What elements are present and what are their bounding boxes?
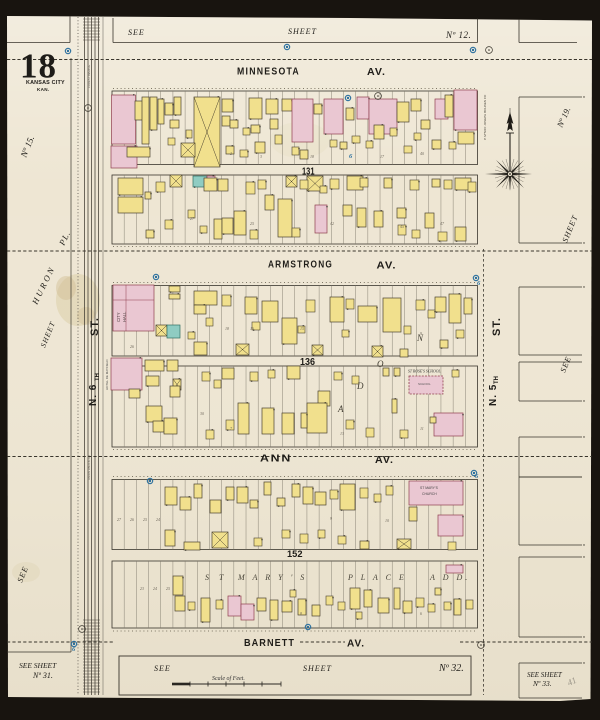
svg-text:SCHOOL: SCHOOL (418, 382, 431, 386)
svg-text:N. 6: N. 6 (88, 384, 99, 406)
svg-text:CITY: CITY (116, 312, 121, 322)
svg-text:SHEET: SHEET (303, 664, 332, 673)
svg-text:136: 136 (300, 356, 315, 368)
svg-text:16: 16 (250, 326, 254, 331)
svg-text:8: 8 (300, 611, 302, 616)
svg-text:S T: S T (205, 573, 227, 582)
svg-text:24: 24 (156, 517, 160, 522)
svg-text:Nº 12.: Nº 12. (445, 30, 471, 40)
svg-text:HOTEL DE MAYFIELD: HOTEL DE MAYFIELD (105, 359, 109, 390)
svg-text:Nº 32.: Nº 32. (438, 663, 464, 674)
svg-text:152: 152 (287, 549, 303, 560)
svg-text:UNION PACIFIC RY: UNION PACIFIC RY (87, 455, 91, 480)
svg-text:13: 13 (340, 431, 344, 436)
svg-text:18: 18 (225, 326, 229, 331)
svg-text:24: 24 (153, 586, 157, 591)
svg-text:M A R Y ' S: M A R Y ' S (237, 573, 307, 582)
svg-text:30: 30 (200, 411, 204, 416)
svg-text:25: 25 (166, 586, 170, 591)
svg-text:SHEET: SHEET (288, 27, 317, 36)
svg-text:AV.: AV. (377, 260, 397, 272)
svg-text:SEE SHEET: SEE SHEET (19, 661, 57, 670)
svg-text:KAN.: KAN. (37, 87, 49, 92)
svg-text:AV.: AV. (375, 454, 394, 466)
svg-text:O: O (377, 359, 384, 369)
svg-text:18: 18 (310, 154, 314, 159)
svg-text:P. MᶜNIFF JOSEPH BOHNEN CO: P. MᶜNIFF JOSEPH BOHNEN CO (483, 94, 487, 140)
svg-text:P L A C E: P L A C E (347, 573, 407, 582)
svg-text:ST ROSE'S SCHOOL: ST ROSE'S SCHOOL (408, 370, 441, 374)
svg-text:SEE: SEE (154, 664, 171, 673)
svg-text:25: 25 (250, 221, 254, 226)
svg-text:23: 23 (140, 586, 144, 591)
svg-text:FOREST AVENUE: FOREST AVENUE (87, 65, 91, 88)
svg-text:CHURCH: CHURCH (422, 492, 437, 496)
svg-text:KANSAS CITY: KANSAS CITY (26, 80, 65, 86)
svg-text:ARMSTRONG: ARMSTRONG (268, 259, 333, 271)
svg-text:Scale of Feet.: Scale of Feet. (212, 675, 245, 682)
svg-text:Nº 33.: Nº 33. (532, 679, 552, 688)
svg-text:SEE: SEE (128, 28, 145, 37)
svg-text:HALL: HALL (122, 311, 127, 322)
svg-text:ST.: ST. (491, 317, 503, 336)
svg-text:N. 5: N. 5 (488, 384, 499, 406)
svg-text:9: 9 (420, 331, 422, 336)
svg-text:SEE SHEET: SEE SHEET (527, 671, 563, 679)
svg-text:D: D (356, 381, 364, 391)
svg-text:42: 42 (330, 221, 334, 226)
svg-text:26: 26 (130, 517, 134, 522)
svg-text:2: 2 (230, 151, 232, 156)
svg-text:TH: TH (494, 376, 500, 384)
svg-text:25: 25 (143, 517, 147, 522)
svg-text:ST.: ST. (89, 317, 101, 336)
svg-text:9: 9 (330, 516, 332, 521)
svg-text:10: 10 (385, 518, 389, 523)
svg-text:A D D.: A D D. (429, 573, 470, 582)
svg-text:3: 3 (260, 154, 262, 159)
svg-text:6: 6 (420, 611, 422, 616)
svg-text:AV.: AV. (347, 638, 365, 650)
svg-text:45: 45 (400, 224, 404, 229)
svg-text:11: 11 (420, 426, 424, 431)
svg-text:MINNESOTA: MINNESOTA (237, 66, 300, 78)
svg-text:TH: TH (95, 373, 101, 381)
svg-text:Nº 31.: Nº 31. (32, 671, 53, 680)
svg-text:40: 40 (420, 151, 424, 156)
svg-text:A: A (337, 404, 344, 414)
svg-text:AV.: AV. (367, 66, 386, 78)
svg-text:BARNETT: BARNETT (244, 637, 295, 649)
svg-text:ST MARY'S: ST MARY'S (420, 486, 439, 490)
svg-text:131: 131 (302, 166, 315, 178)
svg-text:ANN: ANN (260, 453, 292, 465)
svg-text:15: 15 (300, 326, 304, 331)
svg-text:26: 26 (130, 344, 134, 349)
